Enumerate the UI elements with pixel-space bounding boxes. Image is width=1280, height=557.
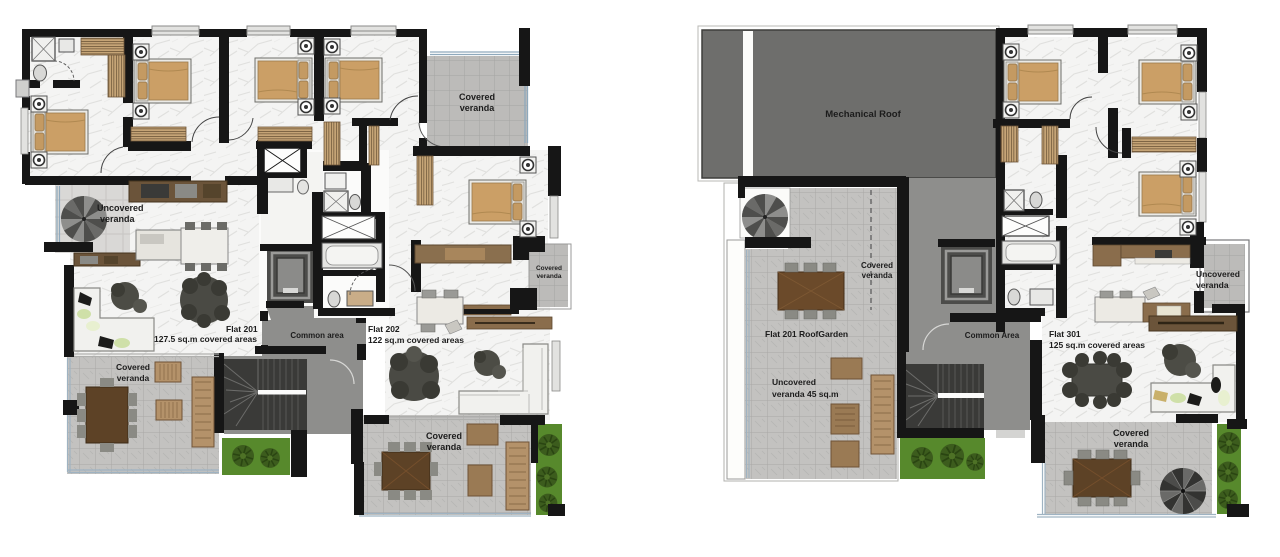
svg-text:Covered: Covered xyxy=(116,362,150,372)
svg-text:Covered: Covered xyxy=(459,92,495,102)
svg-text:Mechanical Roof: Mechanical Roof xyxy=(825,109,901,120)
svg-text:veranda: veranda xyxy=(537,273,562,280)
svg-text:Uncovered: Uncovered xyxy=(1196,269,1240,279)
svg-text:Common Area: Common Area xyxy=(965,331,1020,340)
svg-text:veranda: veranda xyxy=(427,442,463,452)
svg-text:veranda: veranda xyxy=(862,271,893,280)
svg-text:Uncovered: Uncovered xyxy=(97,203,144,213)
svg-text:veranda: veranda xyxy=(117,373,150,383)
svg-text:Flat 202: Flat 202 xyxy=(368,324,400,334)
svg-text:Covered: Covered xyxy=(861,261,893,270)
svg-text:veranda: veranda xyxy=(460,103,496,113)
svg-text:125 sq.m covered areas: 125 sq.m covered areas xyxy=(1049,340,1145,350)
svg-text:Flat 201 RoofGarden: Flat 201 RoofGarden xyxy=(765,329,848,339)
svg-text:Covered: Covered xyxy=(426,431,462,441)
svg-text:veranda 45 sq.m: veranda 45 sq.m xyxy=(772,389,839,399)
svg-text:Flat 301: Flat 301 xyxy=(1049,329,1081,339)
svg-text:veranda: veranda xyxy=(100,214,136,224)
svg-text:Flat 201: Flat 201 xyxy=(226,324,258,334)
svg-text:veranda: veranda xyxy=(1196,280,1229,290)
svg-text:122 sq.m covered areas: 122 sq.m covered areas xyxy=(368,335,464,345)
svg-text:veranda: veranda xyxy=(1114,439,1150,449)
svg-text:Covered: Covered xyxy=(536,265,562,272)
svg-text:Common area: Common area xyxy=(290,331,344,340)
svg-text:127.5 sq.m covered areas: 127.5 sq.m covered areas xyxy=(154,334,257,344)
svg-text:Uncovered: Uncovered xyxy=(772,377,816,387)
svg-text:Covered: Covered xyxy=(1113,428,1149,438)
